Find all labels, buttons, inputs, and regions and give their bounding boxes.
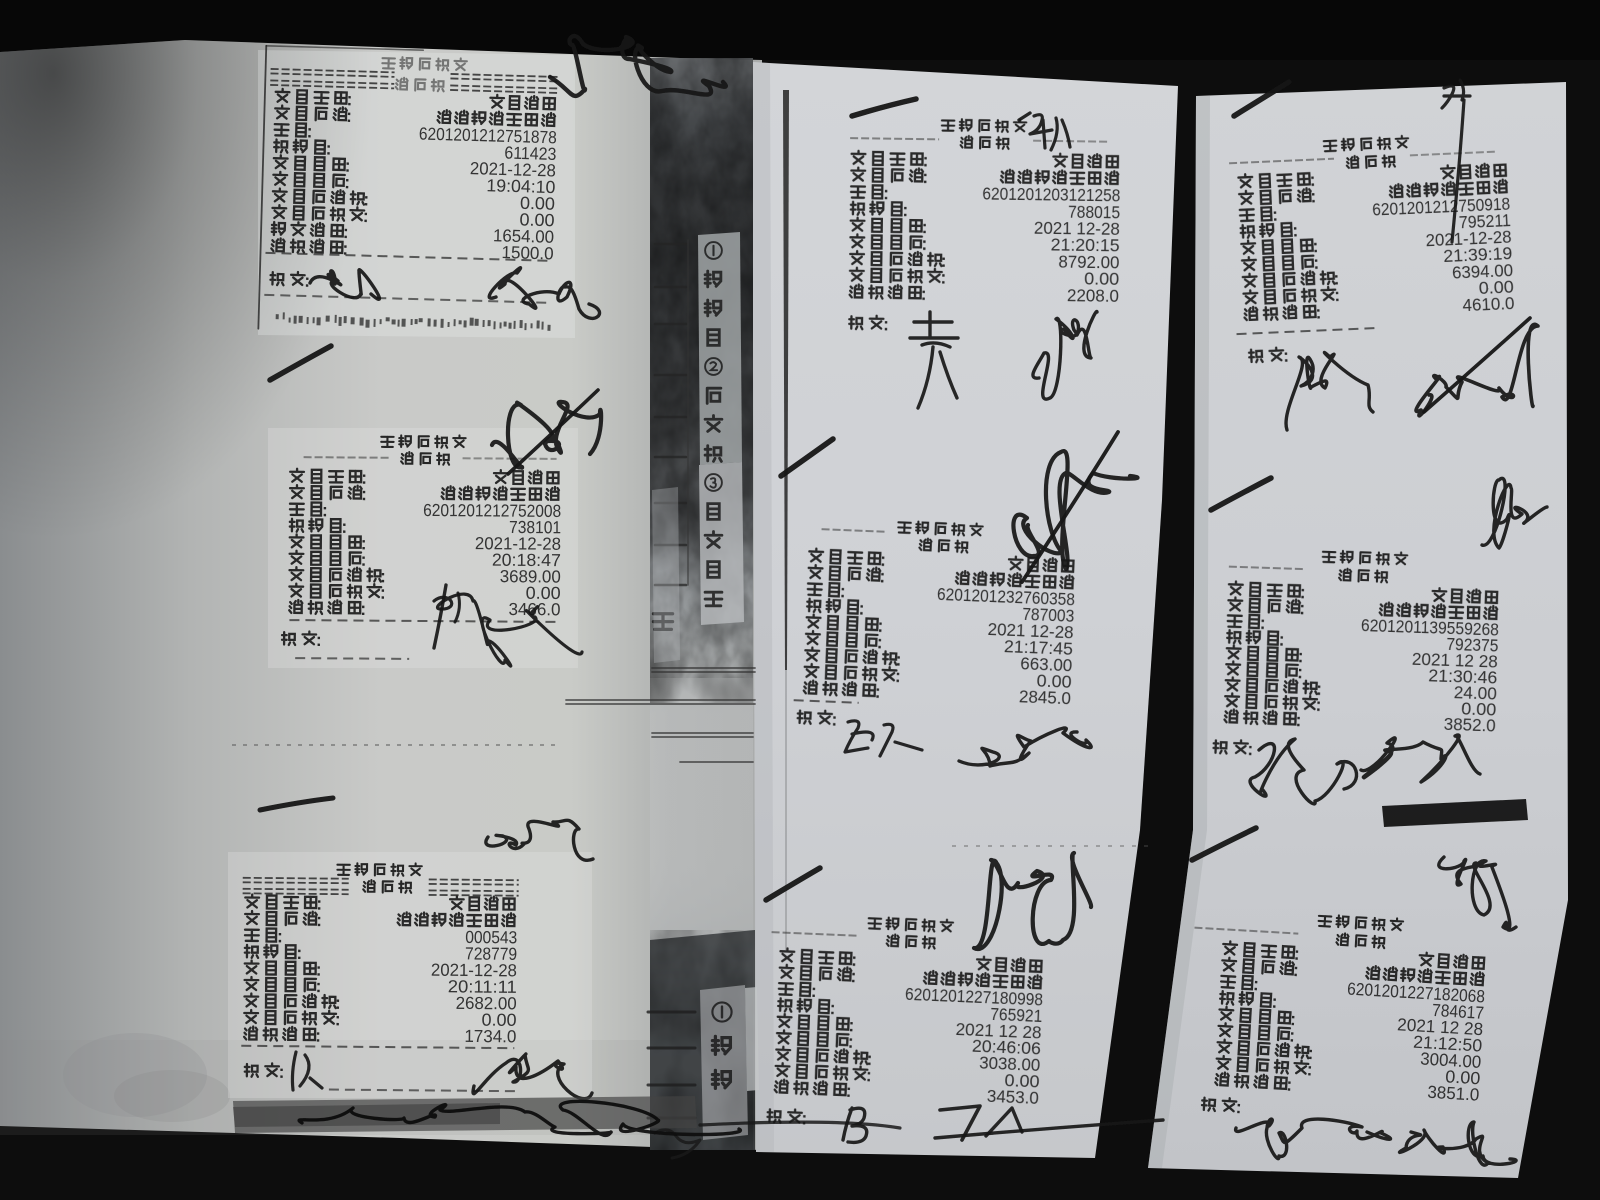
svg-text:2208.0: 2208.0 — [1067, 285, 1120, 306]
svg-text:4610.0: 4610.0 — [1462, 293, 1515, 315]
svg-text:2845.0: 2845.0 — [1019, 686, 1072, 708]
svg-text:3453.0: 3453.0 — [986, 1086, 1039, 1108]
svg-text:3851.0: 3851.0 — [1427, 1082, 1480, 1105]
svg-text:3852.0: 3852.0 — [1443, 714, 1496, 736]
svg-text:1734.0: 1734.0 — [464, 1026, 516, 1046]
